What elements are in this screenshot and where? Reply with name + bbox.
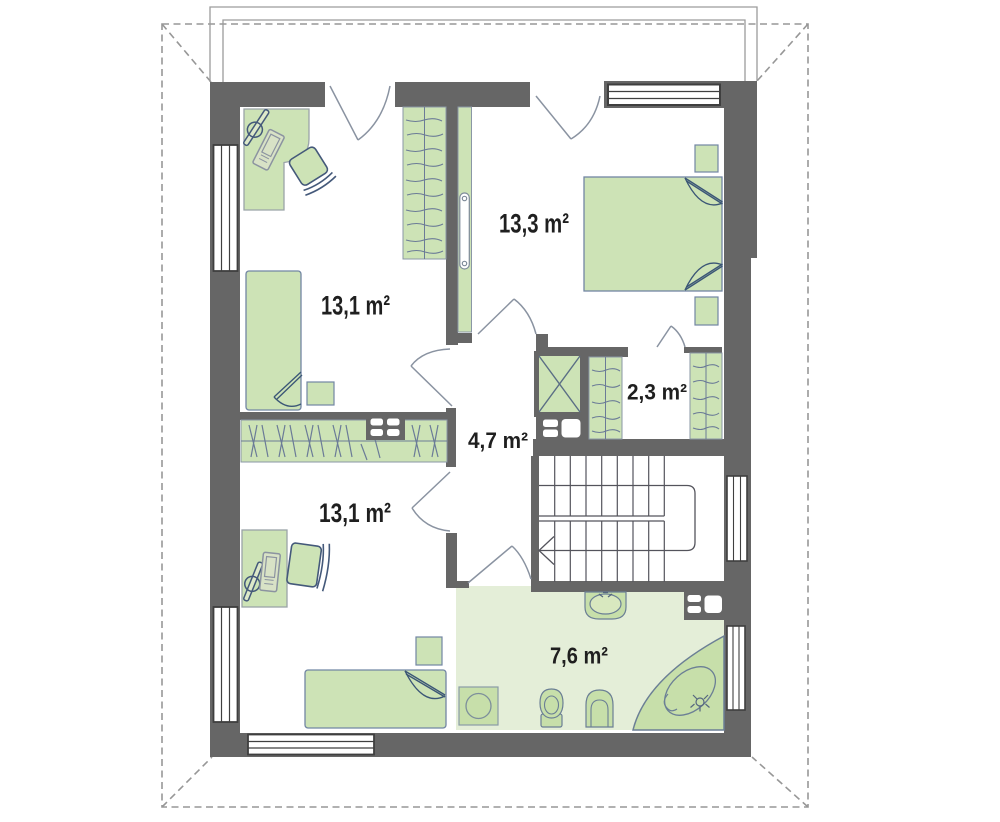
svg-text:7,6 m²: 7,6 m² bbox=[550, 643, 608, 669]
svg-text:13,1 m²: 13,1 m² bbox=[319, 498, 391, 528]
svg-text:13,1 m²: 13,1 m² bbox=[321, 291, 390, 321]
svg-text:13,3 m²: 13,3 m² bbox=[499, 209, 569, 239]
svg-text:2,3 m²: 2,3 m² bbox=[627, 380, 687, 405]
svg-text:4,7 m²: 4,7 m² bbox=[468, 428, 528, 453]
